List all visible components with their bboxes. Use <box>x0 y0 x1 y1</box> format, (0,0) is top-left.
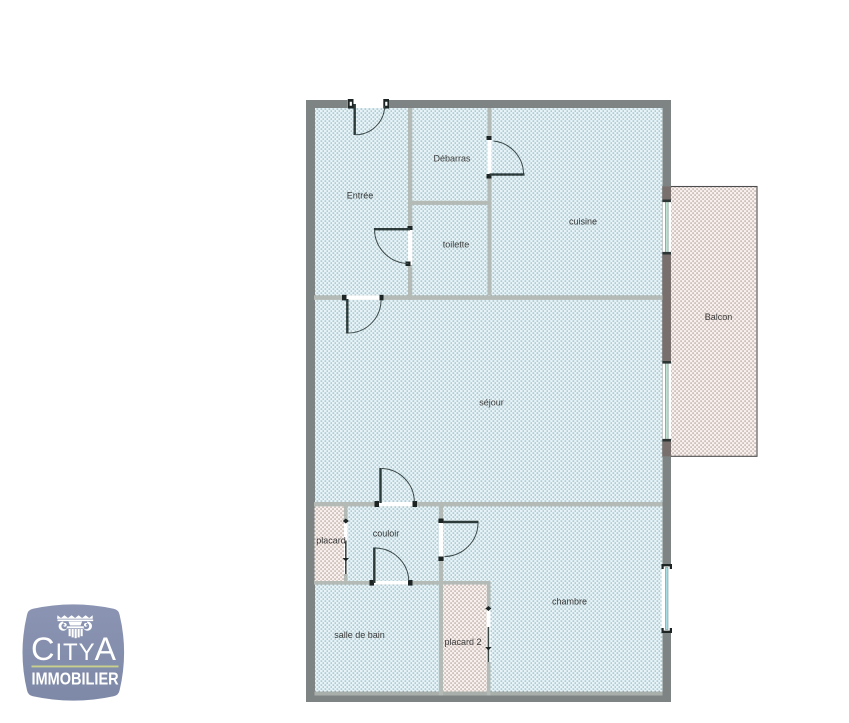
svg-text:I: I <box>56 639 63 666</box>
svg-text:salle de bain: salle de bain <box>334 630 385 640</box>
svg-text:couloir: couloir <box>373 529 400 539</box>
svg-text:placard: placard <box>316 536 346 546</box>
svg-text:placard 2: placard 2 <box>444 637 481 647</box>
svg-text:Entrée: Entrée <box>347 191 374 201</box>
svg-text:Y: Y <box>79 639 95 666</box>
svg-text:T: T <box>63 639 78 666</box>
svg-text:chambre: chambre <box>552 597 587 607</box>
svg-text:toilette: toilette <box>443 240 470 250</box>
svg-text:C: C <box>31 631 55 667</box>
svg-text:Balcon: Balcon <box>705 312 733 322</box>
svg-text:A: A <box>95 631 117 667</box>
svg-text:séjour: séjour <box>479 398 504 408</box>
svg-text:Débarras: Débarras <box>433 154 471 164</box>
svg-text:IMMOBILIER: IMMOBILIER <box>32 669 119 689</box>
svg-text:cuisine: cuisine <box>569 217 597 227</box>
